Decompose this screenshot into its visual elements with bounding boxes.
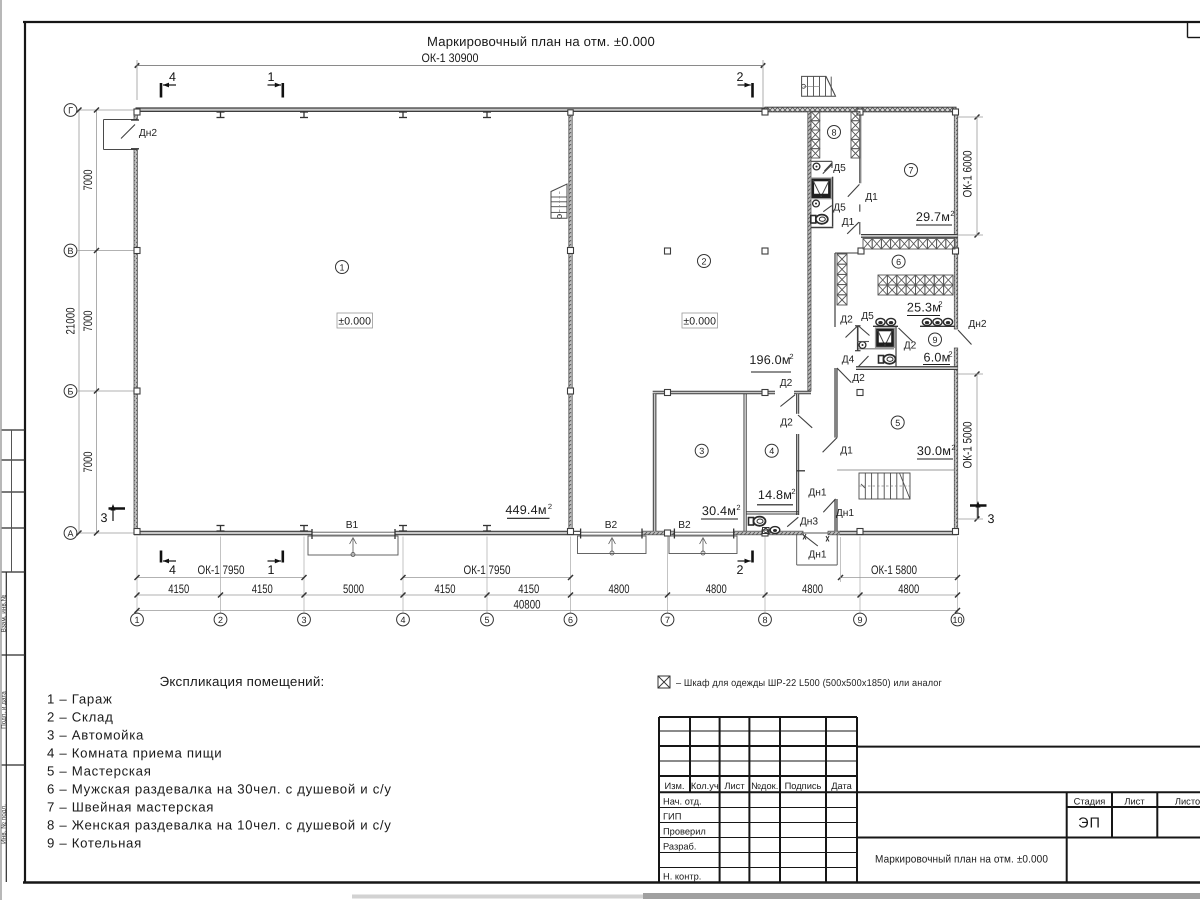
- svg-text:ГИП: ГИП: [663, 812, 681, 822]
- svg-text:2: 2: [950, 209, 954, 218]
- svg-text:4800: 4800: [898, 582, 919, 596]
- svg-text:10: 10: [952, 615, 962, 625]
- svg-text:Нач. отд.: Нач. отд.: [663, 797, 702, 807]
- svg-text:8 – Женская раздевалка на 10че: 8 – Женская раздевалка на 10чел. с душев…: [47, 818, 392, 833]
- svg-text:Д5: Д5: [833, 163, 846, 174]
- svg-text:30.4м: 30.4м: [702, 504, 736, 518]
- svg-text:2: 2: [218, 615, 223, 625]
- svg-text:7: 7: [908, 165, 913, 175]
- svg-text:Д4: Д4: [842, 355, 855, 366]
- svg-text:25.3м: 25.3м: [907, 301, 941, 315]
- svg-text:30.0м: 30.0м: [917, 444, 951, 458]
- svg-text:196.0м: 196.0м: [749, 353, 790, 367]
- svg-text:2: 2: [737, 563, 744, 577]
- svg-text:3 – Автомойка: 3 – Автомойка: [47, 728, 144, 743]
- svg-text:7000: 7000: [81, 169, 95, 190]
- svg-text:1: 1: [339, 262, 344, 272]
- svg-text:4: 4: [400, 615, 405, 625]
- svg-text:Дн1: Дн1: [836, 508, 855, 519]
- svg-text:4150: 4150: [168, 582, 189, 596]
- svg-text:2 – Склад: 2 – Склад: [47, 710, 113, 725]
- svg-text:±0.000: ±0.000: [683, 316, 716, 328]
- svg-text:1: 1: [268, 563, 275, 577]
- svg-text:Дн2: Дн2: [139, 128, 158, 139]
- svg-text:Б: Б: [68, 386, 74, 396]
- svg-text:2: 2: [938, 300, 942, 309]
- svg-text:Лист: Лист: [1124, 796, 1145, 806]
- svg-text:1: 1: [268, 70, 275, 84]
- svg-text:Взам. инв.№: Взам. инв.№: [1, 594, 8, 632]
- svg-text:ОК-1 5000: ОК-1 5000: [961, 421, 975, 468]
- svg-text:2: 2: [737, 70, 744, 84]
- svg-text:14.8м: 14.8м: [758, 488, 792, 502]
- svg-text:Листов: Листов: [1175, 796, 1200, 806]
- svg-text:Маркировочный план на отм. ±0.: Маркировочный план на отм. ±0.000: [875, 854, 1048, 866]
- svg-text:Дн1: Дн1: [808, 488, 827, 499]
- svg-text:7000: 7000: [81, 451, 95, 472]
- svg-text:4150: 4150: [435, 582, 456, 596]
- svg-text:4 – Комната приема пищи: 4 – Комната приема пищи: [47, 746, 222, 761]
- svg-text:5: 5: [484, 615, 489, 625]
- svg-text:Дата: Дата: [831, 781, 852, 791]
- svg-text:2: 2: [948, 350, 952, 359]
- svg-text:В2: В2: [605, 520, 618, 531]
- svg-text:6: 6: [568, 615, 573, 625]
- svg-text:4800: 4800: [609, 582, 630, 596]
- svg-text:ЭП: ЭП: [1078, 816, 1101, 832]
- svg-text:Д5: Д5: [833, 203, 846, 214]
- svg-text:Проверил: Проверил: [663, 827, 706, 837]
- svg-text:2: 2: [736, 503, 740, 512]
- svg-text:Разраб.: Разраб.: [663, 842, 696, 852]
- svg-text:2: 2: [951, 443, 955, 452]
- svg-text:Д5: Д5: [861, 311, 874, 322]
- svg-text:8: 8: [762, 615, 767, 625]
- svg-text:4800: 4800: [802, 582, 823, 596]
- svg-text:9 – Котельная: 9 – Котельная: [47, 836, 142, 851]
- svg-text:Стадия: Стадия: [1074, 796, 1106, 806]
- svg-text:±0.000: ±0.000: [338, 316, 371, 328]
- svg-text:Д2: Д2: [904, 341, 917, 352]
- svg-text:21000: 21000: [64, 307, 78, 334]
- svg-text:Подп. и дата: Подп. и дата: [1, 691, 8, 729]
- svg-text:9: 9: [932, 335, 937, 345]
- svg-text:Дн1: Дн1: [808, 550, 827, 561]
- svg-text:Д2: Д2: [780, 418, 793, 429]
- svg-text:Д1: Д1: [840, 446, 853, 457]
- svg-text:Д2: Д2: [852, 373, 865, 384]
- svg-text:4150: 4150: [518, 582, 539, 596]
- svg-text:– Шкаф для одежды ШР-22 L500: – Шкаф для одежды ШР-22 L500 (500х500х18…: [676, 678, 942, 689]
- svg-text:Изм.: Изм.: [665, 781, 685, 791]
- svg-text:3: 3: [101, 511, 108, 525]
- svg-text:В: В: [67, 246, 73, 256]
- svg-text:7 – Швейная мастерская: 7 – Швейная мастерская: [47, 800, 214, 815]
- svg-text:ОК-1 30900: ОК-1 30900: [422, 51, 479, 65]
- svg-text:5: 5: [895, 418, 900, 428]
- svg-text:6: 6: [896, 257, 901, 267]
- svg-text:Д1: Д1: [865, 192, 878, 203]
- svg-text:ОК-1 7950: ОК-1 7950: [464, 563, 511, 577]
- svg-text:7000: 7000: [81, 310, 95, 331]
- svg-text:4: 4: [769, 446, 774, 456]
- svg-text:4800: 4800: [706, 582, 727, 596]
- svg-text:1 – Гараж: 1 – Гараж: [47, 692, 113, 707]
- svg-text:6.0м: 6.0м: [924, 351, 951, 365]
- svg-text:7: 7: [665, 615, 670, 625]
- svg-text:Подпись: Подпись: [785, 781, 822, 791]
- svg-text:8: 8: [831, 127, 836, 137]
- svg-text:449.4м: 449.4м: [505, 503, 546, 517]
- svg-text:Дн3: Дн3: [800, 517, 819, 528]
- svg-text:3: 3: [988, 512, 995, 526]
- svg-text:3: 3: [699, 446, 704, 456]
- svg-text:Д2: Д2: [780, 378, 793, 389]
- svg-text:Д1: Д1: [842, 217, 855, 228]
- svg-text:№док.: №док.: [751, 781, 778, 791]
- svg-text:3: 3: [301, 615, 306, 625]
- svg-text:Экспликация помещений:: Экспликация помещений:: [160, 674, 325, 689]
- svg-text:А: А: [67, 528, 73, 538]
- svg-text:ОК-1 5800: ОК-1 5800: [871, 563, 917, 577]
- svg-text:Д2: Д2: [840, 315, 853, 326]
- svg-text:ОК-1 6000: ОК-1 6000: [961, 150, 975, 197]
- svg-text:Кол.уч: Кол.уч: [691, 781, 719, 791]
- svg-text:4: 4: [169, 70, 176, 84]
- svg-text:2: 2: [548, 502, 552, 511]
- svg-text:ОК-1 7950: ОК-1 7950: [198, 563, 245, 577]
- svg-text:2: 2: [789, 352, 793, 361]
- svg-text:5 – Мастерская: 5 – Мастерская: [47, 764, 152, 779]
- svg-text:Г: Г: [68, 105, 73, 115]
- svg-text:Инв. № подл.: Инв. № подл.: [1, 804, 8, 844]
- svg-text:40800: 40800: [514, 598, 541, 612]
- svg-text:В1: В1: [346, 520, 359, 531]
- svg-text:1: 1: [134, 615, 139, 625]
- svg-text:9: 9: [857, 615, 862, 625]
- svg-text:4: 4: [169, 563, 176, 577]
- svg-text:2: 2: [701, 256, 706, 266]
- svg-text:Лист: Лист: [724, 781, 745, 791]
- svg-text:29.7м: 29.7м: [916, 210, 950, 224]
- svg-text:Дн2: Дн2: [968, 319, 987, 330]
- svg-text:2: 2: [791, 487, 795, 496]
- svg-text:4150: 4150: [252, 582, 273, 596]
- svg-text:6 – Мужская раздевалка на 30че: 6 – Мужская раздевалка на 30чел. с душев…: [47, 782, 392, 797]
- svg-text:5000: 5000: [343, 582, 364, 596]
- svg-text:В2: В2: [678, 520, 691, 531]
- svg-text:Н. контр.: Н. контр.: [663, 872, 701, 882]
- svg-text:Маркировочный план на отм. ±0.: Маркировочный план на отм. ±0.000: [427, 34, 655, 49]
